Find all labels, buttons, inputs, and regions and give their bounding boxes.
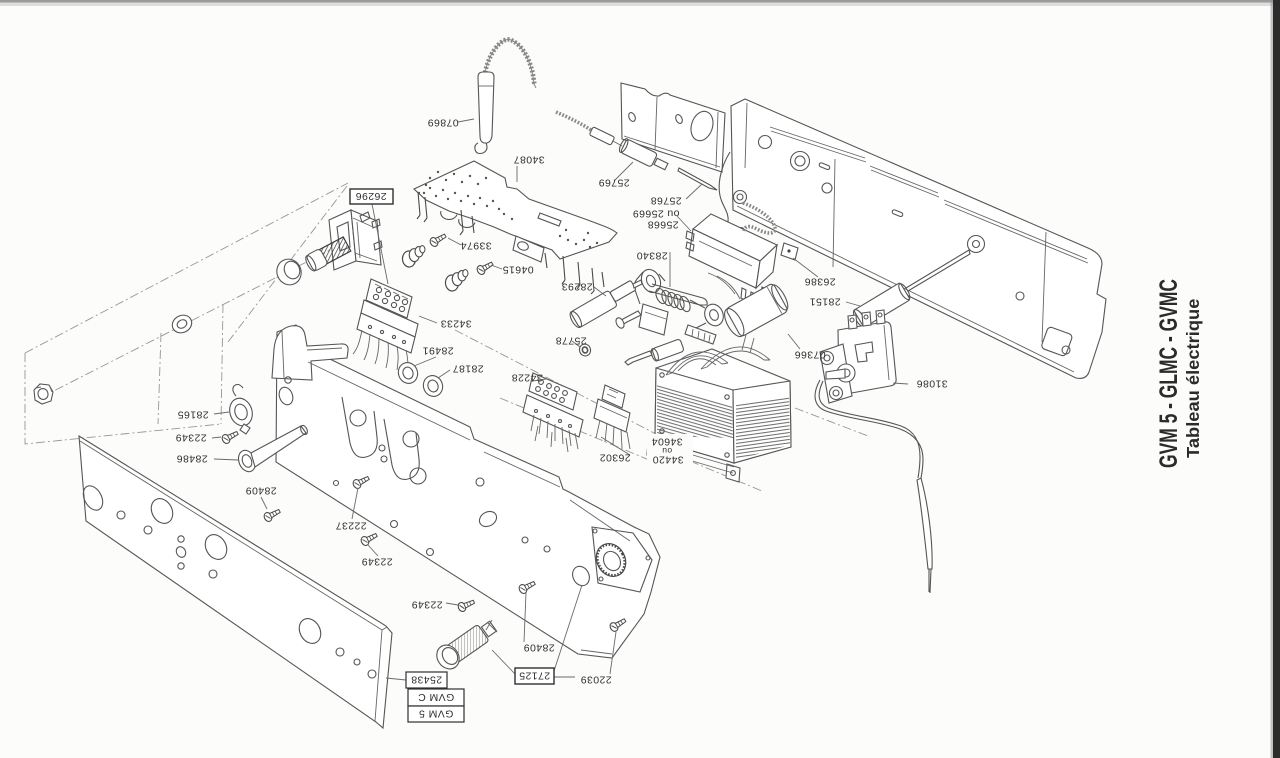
- svg-text:28151: 28151: [809, 296, 840, 308]
- svg-text:ou 25669: ou 25669: [633, 208, 680, 220]
- svg-text:34228: 34228: [511, 372, 542, 384]
- svg-text:GVM C: GVM C: [418, 691, 454, 703]
- svg-text:26302: 26302: [599, 452, 630, 464]
- svg-text:25668: 25668: [647, 219, 678, 231]
- svg-text:34087: 34087: [513, 154, 544, 166]
- svg-text:07869: 07869: [427, 117, 458, 129]
- svg-text:34604: 34604: [651, 436, 682, 448]
- svg-text:34420: 34420: [652, 454, 683, 466]
- svg-text:25438: 25438: [411, 674, 442, 686]
- svg-text:28165: 28165: [177, 409, 208, 421]
- svg-text:22237: 22237: [335, 520, 366, 532]
- svg-text:25778: 25778: [555, 335, 586, 347]
- svg-text:04615: 04615: [502, 264, 533, 276]
- svg-text:28409: 28409: [245, 485, 276, 497]
- svg-text:31086: 31086: [916, 378, 947, 390]
- svg-text:28409: 28409: [523, 642, 554, 654]
- svg-text:26386: 26386: [804, 276, 835, 288]
- svg-text:22039: 22039: [580, 674, 611, 686]
- svg-text:22349: 22349: [361, 556, 392, 568]
- svg-text:34233: 34233: [440, 318, 471, 330]
- svg-text:07366: 07366: [794, 349, 825, 361]
- svg-text:25769: 25769: [598, 177, 629, 189]
- svg-text:28187: 28187: [452, 363, 483, 375]
- svg-text:28340: 28340: [636, 250, 667, 262]
- svg-text:28491: 28491: [422, 345, 453, 357]
- svg-text:28293: 28293: [561, 281, 592, 293]
- svg-text:GVM 5: GVM 5: [419, 708, 454, 720]
- svg-text:GVM 5 - GLMC - GVMC: GVM 5 - GLMC - GVMC: [1155, 279, 1183, 468]
- svg-text:25768: 25768: [650, 195, 681, 207]
- svg-text:28486: 28486: [176, 453, 207, 465]
- svg-text:22349: 22349: [175, 432, 206, 444]
- svg-text:Tableau électrique: Tableau électrique: [1183, 298, 1202, 458]
- svg-text:33974: 33974: [460, 240, 491, 252]
- svg-text:26296: 26296: [355, 190, 386, 202]
- svg-text:22349: 22349: [411, 599, 442, 611]
- svg-text:27125: 27125: [519, 670, 550, 682]
